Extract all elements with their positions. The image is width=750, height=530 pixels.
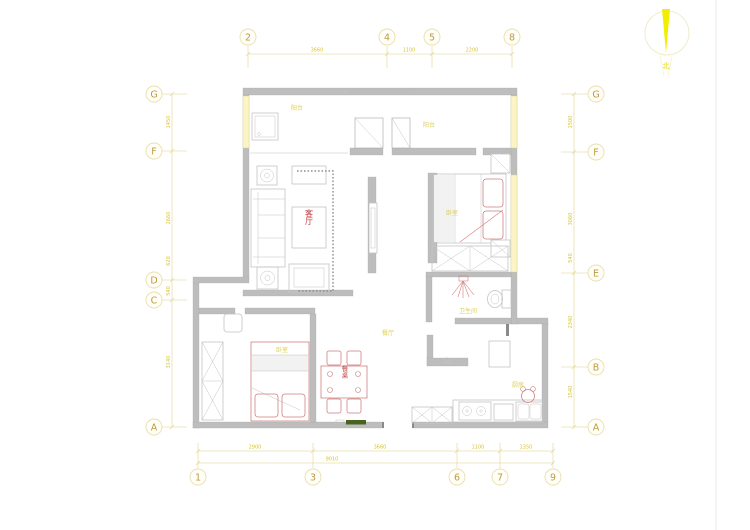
sink-body bbox=[516, 402, 543, 421]
dimension-text-bottom-overall: 9010 bbox=[326, 457, 339, 463]
dimension-text-right: 1500 bbox=[568, 116, 574, 129]
grid-bubble-label-bottom-7: 7 bbox=[497, 473, 503, 484]
stove-burner bbox=[466, 410, 468, 412]
dimension-text-left: 2660 bbox=[166, 212, 172, 225]
plant-pot-icon bbox=[261, 271, 275, 285]
dimension-text-right: 3060 bbox=[568, 213, 574, 226]
plant-pot-icon bbox=[261, 169, 274, 182]
wall-bedroom2-right bbox=[310, 314, 316, 422]
dining-set bbox=[321, 351, 367, 413]
plant-pot-icon bbox=[257, 267, 278, 289]
water-heater-knob bbox=[531, 387, 536, 392]
grid-bubble-label-right-A: A bbox=[593, 423, 600, 434]
entry-threshold bbox=[346, 420, 366, 425]
pillow bbox=[483, 211, 503, 239]
sofa bbox=[251, 189, 285, 267]
dining-chair bbox=[327, 399, 341, 413]
grid-bubble-label-bottom-6: 6 bbox=[454, 473, 460, 484]
dimension-text-bottom: 1350 bbox=[520, 445, 533, 451]
kitchen-cabinet bbox=[489, 341, 510, 367]
bed-fold-line bbox=[252, 388, 300, 410]
stove-burner bbox=[480, 410, 482, 412]
door-mark bbox=[506, 324, 509, 336]
stove-icon bbox=[459, 402, 491, 420]
grid-bubble-label-bottom-1: 1 bbox=[195, 473, 201, 484]
dimension-text-left: 3140 bbox=[166, 356, 172, 369]
grid-bubble-label-right-F: F bbox=[593, 148, 598, 159]
shower-spray bbox=[463, 281, 469, 297]
grid-bubble-label-bottom-9: 9 bbox=[550, 473, 556, 484]
window-bedroom bbox=[511, 175, 517, 272]
dimension-text-right: 540 bbox=[568, 253, 574, 263]
dining-chair bbox=[347, 351, 361, 365]
dimension-text-top: 2200 bbox=[466, 48, 479, 54]
wall-bedroom2-top-1 bbox=[199, 308, 235, 314]
nightstand bbox=[224, 314, 242, 332]
counter-section bbox=[494, 404, 513, 420]
shower-spray bbox=[452, 281, 463, 295]
wall-balcony-1 bbox=[350, 148, 383, 155]
bed-shading bbox=[434, 175, 454, 242]
grid-bubble-label-bottom-3: 3 bbox=[310, 473, 316, 484]
entry-door-jamb bbox=[382, 422, 384, 428]
shower-spray bbox=[463, 281, 474, 295]
living-room-label: 客厅 bbox=[305, 208, 314, 225]
second-bedroom bbox=[202, 314, 309, 421]
side-table bbox=[292, 166, 326, 184]
dimension-text-right: 1540 bbox=[568, 386, 574, 399]
window-left bbox=[243, 96, 249, 148]
dimension-text-bottom: 2900 bbox=[249, 445, 262, 451]
plant-pot-icon bbox=[265, 275, 270, 280]
north-label: 北 bbox=[663, 62, 670, 70]
wall-balcony-2 bbox=[392, 148, 476, 155]
toilet-tank bbox=[502, 290, 511, 308]
shower-spray bbox=[458, 281, 463, 297]
sink-basin bbox=[518, 404, 529, 419]
dimension-text-top: 1100 bbox=[403, 48, 416, 54]
dining-chair bbox=[327, 351, 341, 365]
wall-left-step bbox=[193, 277, 249, 283]
grid-bubble-label-left-F: F bbox=[151, 147, 156, 158]
armchair-seat bbox=[294, 268, 324, 287]
stove-burner bbox=[477, 407, 486, 416]
window-right-upper bbox=[511, 96, 517, 148]
kitchen-counter bbox=[453, 400, 543, 422]
north-arrow: 北 bbox=[645, 9, 689, 76]
drawing-sheet: 2458366011002200136792900366011001350901… bbox=[0, 0, 750, 530]
toilet-icon bbox=[488, 290, 512, 308]
kitchen-low-cabinet bbox=[412, 407, 452, 423]
dimension-text-left: 620 bbox=[166, 256, 172, 266]
dimension-text-bottom: 1100 bbox=[472, 445, 485, 451]
living-room bbox=[251, 166, 377, 292]
dimension-text-right: 2340 bbox=[568, 316, 574, 329]
pillow bbox=[282, 394, 305, 417]
balcony-left-label: 阳台 bbox=[291, 104, 303, 112]
tv-niche bbox=[369, 203, 377, 253]
wall-bathroom-left bbox=[426, 277, 432, 322]
master-bedroom bbox=[432, 154, 510, 271]
dimension-text-left: 1450 bbox=[166, 116, 172, 129]
toilet-bowl bbox=[488, 291, 503, 308]
grid-bubble-label-right-E: E bbox=[593, 269, 599, 280]
place-setting-icon bbox=[356, 388, 361, 393]
wall-bathroom-top bbox=[426, 272, 511, 277]
grid-bubble-label-top-4: 4 bbox=[384, 33, 390, 44]
wall-bathroom-bottom bbox=[455, 318, 511, 324]
floor-plan-canvas: 2458366011002200136792900366011001350901… bbox=[0, 0, 750, 530]
bed-shading bbox=[252, 355, 308, 371]
north-arrow-needle-icon bbox=[662, 9, 670, 53]
pillow bbox=[483, 179, 503, 207]
pillow bbox=[255, 394, 278, 417]
cabinet-inner bbox=[255, 116, 275, 137]
stove-burner bbox=[463, 407, 472, 416]
second-bedroom-label: 卧室 bbox=[276, 346, 288, 354]
grid-bubble-label-right-G: G bbox=[592, 90, 599, 101]
dining-table-label: 餐桌 bbox=[340, 364, 348, 380]
columns bbox=[355, 118, 410, 148]
wall-bedroom2-top-2 bbox=[245, 308, 315, 314]
place-setting-icon bbox=[328, 372, 333, 377]
place-setting-icon bbox=[356, 372, 361, 377]
grid-bubble-label-top-8: 8 bbox=[509, 33, 515, 44]
kitchen-label: 厨房 bbox=[512, 381, 524, 389]
grid-bubble-label-left-A: A bbox=[151, 423, 158, 434]
plant-pot-icon bbox=[265, 173, 270, 178]
stove-body bbox=[459, 402, 491, 420]
shower-icon bbox=[452, 276, 474, 298]
master-bedroom-label: 卧室 bbox=[446, 209, 458, 217]
bed-fold-line bbox=[460, 210, 503, 242]
cabinet bbox=[252, 113, 278, 140]
wall-top bbox=[243, 88, 517, 95]
dimension-text-bottom: 3660 bbox=[374, 445, 387, 451]
sink-icon bbox=[516, 402, 543, 421]
sink-basin bbox=[530, 404, 541, 419]
place-setting-icon bbox=[328, 388, 333, 393]
wall-living-bottom bbox=[243, 290, 353, 296]
dining-label: 餐厅 bbox=[382, 329, 394, 337]
grid-bubble-label-left-C: C bbox=[151, 296, 158, 307]
dining-chair bbox=[347, 399, 361, 413]
bathroom-label: 卫生间 bbox=[459, 307, 477, 315]
bathroom bbox=[452, 276, 511, 308]
grid-bubble-label-left-G: G bbox=[150, 90, 157, 101]
grid-bubble-label-top-5: 5 bbox=[429, 33, 435, 44]
cabinet-knob bbox=[258, 133, 261, 136]
balcony-right-label: 阳台 bbox=[423, 121, 435, 129]
balcony bbox=[252, 113, 278, 140]
wall-left-lower bbox=[193, 283, 199, 428]
grid-bubble-label-top-2: 2 bbox=[245, 33, 251, 44]
grid-bubble-label-right-B: B bbox=[593, 363, 600, 374]
dimension-text-left: 540 bbox=[166, 286, 172, 296]
grid-bubble-label-left-D: D bbox=[150, 276, 157, 287]
toilet-bowl-inner bbox=[491, 294, 499, 304]
tv-feature-wall-dotted bbox=[297, 171, 333, 291]
dimension-text-top: 3660 bbox=[311, 48, 324, 54]
